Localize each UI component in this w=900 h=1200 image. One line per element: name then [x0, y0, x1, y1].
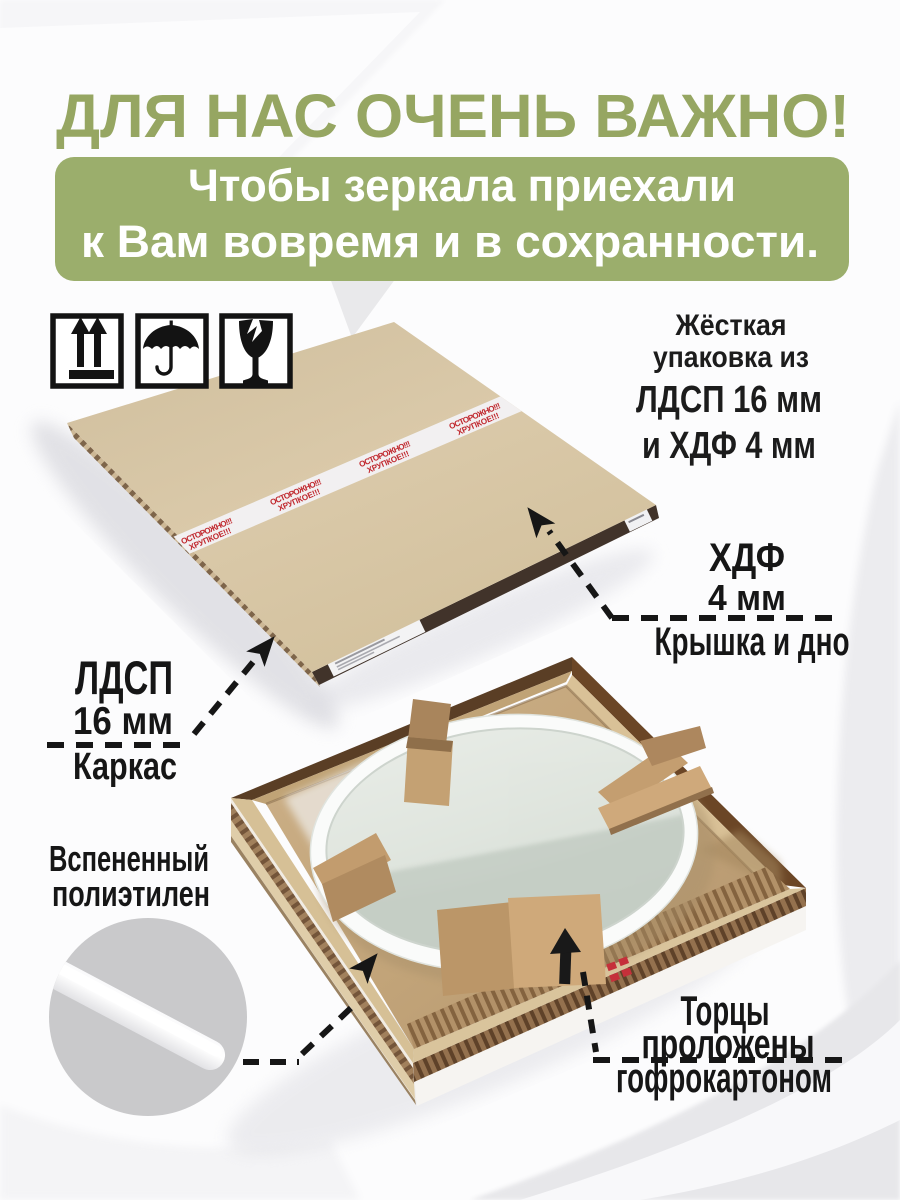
svg-text:Каркас: Каркас: [73, 746, 177, 788]
svg-text:ДЛЯ НАС ОЧЕНЬ ВАЖНО!: ДЛЯ НАС ОЧЕНЬ ВАЖНО!: [56, 82, 850, 150]
svg-text:полиэтилен: полиэтилен: [52, 873, 210, 914]
svg-text:упаковка из: упаковка из: [653, 341, 809, 374]
svg-text:ХДФ: ХДФ: [709, 536, 785, 580]
svg-text:ЛДСП: ЛДСП: [75, 651, 173, 704]
svg-text:ЛДСП 16 мм: ЛДСП 16 мм: [636, 379, 822, 421]
svg-text:Крышка и дно: Крышка и дно: [655, 620, 850, 664]
svg-text:16 мм: 16 мм: [73, 700, 173, 743]
svg-text:к Вам вовремя и в сохранности.: к Вам вовремя и в сохранности.: [81, 216, 819, 267]
svg-text:4 мм: 4 мм: [708, 577, 786, 618]
svg-text:Чтобы зеркала приехали: Чтобы зеркала приехали: [188, 160, 736, 211]
svg-text:и ХДФ 4 мм: и ХДФ 4 мм: [642, 425, 816, 467]
svg-text:Жёсткая: Жёсткая: [675, 309, 787, 342]
